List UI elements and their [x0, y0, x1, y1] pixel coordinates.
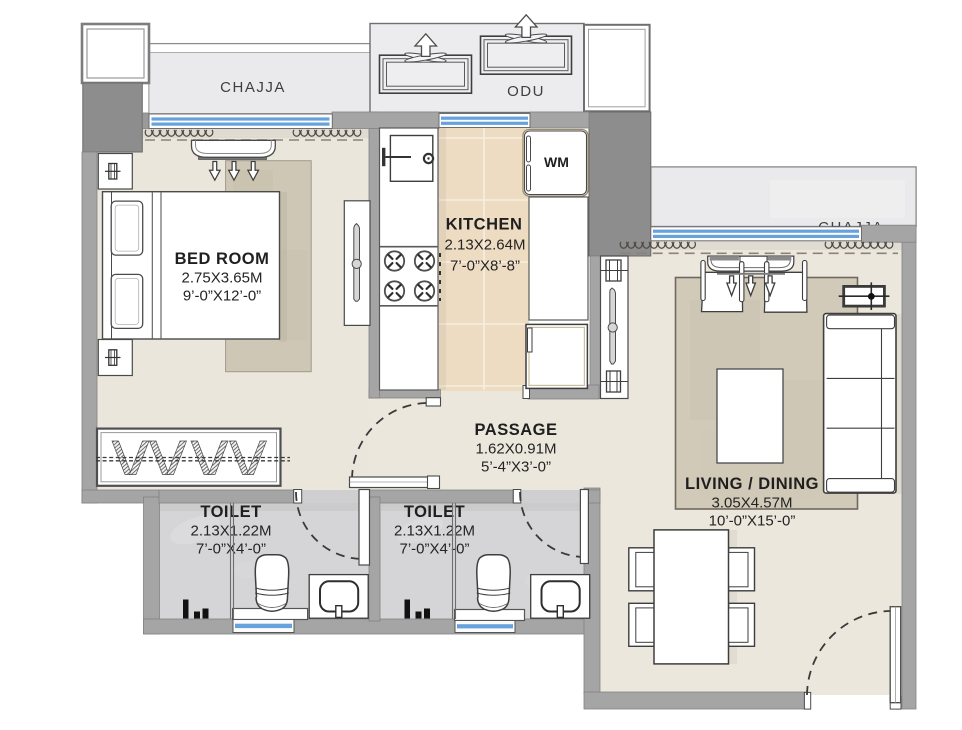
svg-text:2.75X3.65M: 2.75X3.65M	[182, 270, 263, 287]
svg-text:7’-0”X4’-0”: 7’-0”X4’-0”	[399, 541, 469, 558]
svg-text:2.13X1.22M: 2.13X1.22M	[394, 523, 475, 540]
svg-text:7’-0”X8’-8”: 7’-0”X8’-8”	[450, 258, 520, 275]
svg-text:CHAJJA: CHAJJA	[220, 79, 286, 96]
svg-text:2.13X2.64M: 2.13X2.64M	[445, 237, 526, 254]
svg-text:3.05X4.57M: 3.05X4.57M	[712, 495, 793, 512]
svg-text:LIVING / DINING: LIVING / DINING	[685, 475, 819, 493]
svg-text:PASSAGE: PASSAGE	[475, 421, 558, 439]
svg-text:9’-0”X12’-0”: 9’-0”X12’-0”	[183, 288, 261, 305]
svg-text:KITCHEN: KITCHEN	[446, 216, 523, 234]
svg-text:1.62X0.91M: 1.62X0.91M	[476, 441, 557, 458]
svg-text:WM: WM	[544, 154, 569, 170]
svg-text:10’-0”X15’-0”: 10’-0”X15’-0”	[709, 513, 796, 530]
svg-text:BED ROOM: BED ROOM	[175, 250, 270, 268]
svg-text:ODU: ODU	[507, 83, 545, 100]
svg-text:5’-4”X3’-0”: 5’-4”X3’-0”	[481, 459, 551, 476]
